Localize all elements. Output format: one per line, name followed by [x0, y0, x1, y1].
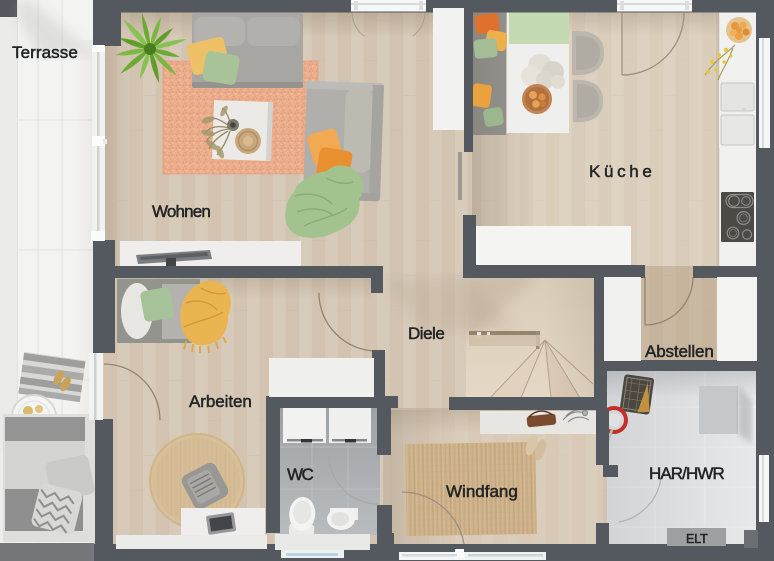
svg-text:Arbeiten: Arbeiten	[189, 392, 252, 411]
svg-text:Wohnen: Wohnen	[152, 202, 211, 221]
svg-text:Terrasse: Terrasse	[12, 43, 78, 62]
svg-text:ELT: ELT	[686, 532, 708, 546]
svg-text:Diele: Diele	[408, 324, 445, 343]
svg-text:WC: WC	[287, 465, 314, 484]
svg-text:Windfang: Windfang	[446, 482, 518, 501]
svg-text:Abstellen: Abstellen	[645, 342, 714, 361]
svg-text:HAR/HWR: HAR/HWR	[649, 464, 725, 483]
svg-text:Küche: Küche	[589, 162, 652, 181]
